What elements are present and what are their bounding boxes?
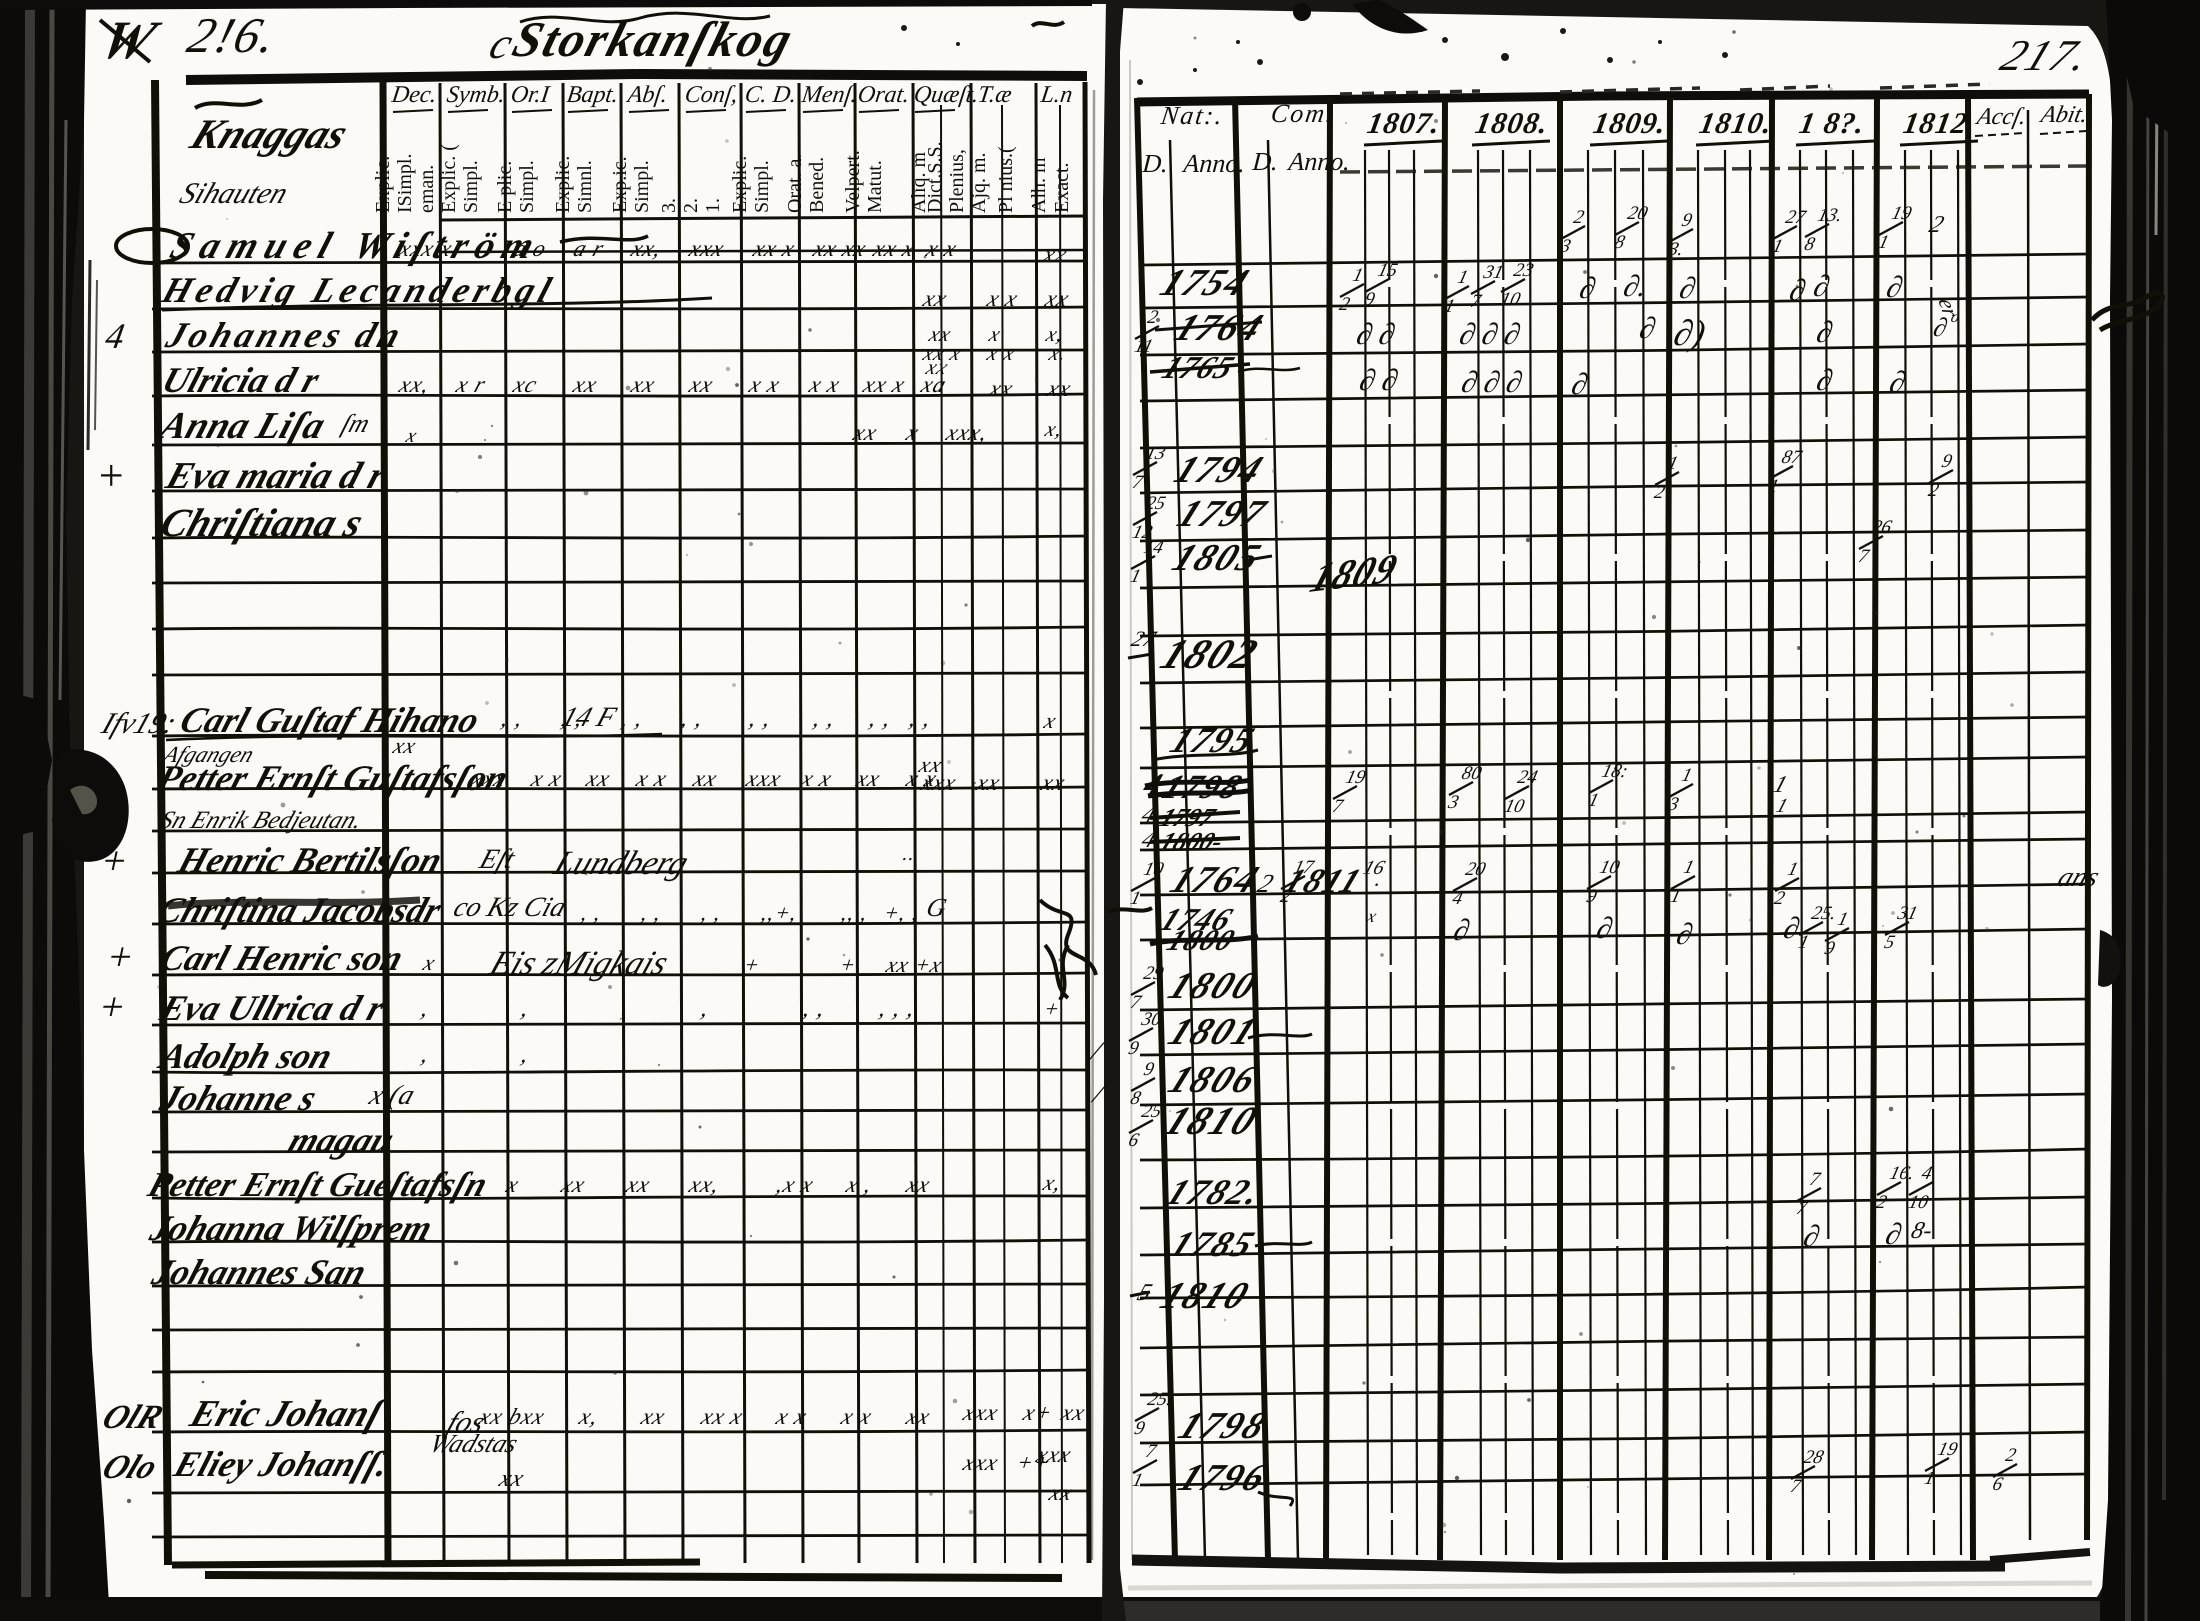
svg-text:xx x: xx x <box>697 1405 747 1430</box>
svg-text:Explic.: Explic. <box>372 156 394 213</box>
svg-text:Explic.: Explic. <box>729 156 751 213</box>
svg-text:Sihauten: Sihauten <box>176 176 293 210</box>
svg-text:Eis zMigkais: Eis zMigkais <box>484 944 673 982</box>
svg-text:1 8?.: 1 8?. <box>1797 106 1868 140</box>
svg-text:Wadstas: Wadstas <box>426 1429 522 1458</box>
svg-text:Ifv19:: Ifv19: <box>97 706 182 740</box>
svg-text:2!6.: 2!6. <box>182 9 285 64</box>
svg-text:Pl nius.(: Pl nius.( <box>995 146 1017 213</box>
svg-text:Matut.: Matut. <box>864 160 886 213</box>
svg-text:1808.: 1808. <box>1473 106 1551 140</box>
svg-text:xx x: xx x <box>749 237 799 262</box>
svg-text:Storkanſkog: Storkanſkog <box>507 13 800 68</box>
svg-text:co Kz Cia: co Kz Cia <box>450 892 571 923</box>
svg-text:Dec.: Dec. <box>389 82 438 108</box>
svg-text:Menſ.: Menſ. <box>799 82 859 108</box>
svg-text:Chriſtiana s: Chriſtiana s <box>155 500 368 545</box>
svg-text:Accſ.: Accſ. <box>1973 103 2029 130</box>
svg-text:Orat. a.: Orat. a. <box>784 154 806 213</box>
svg-text:Abit.: Abit. <box>2037 101 2091 128</box>
svg-text:Eva maria d r: Eva maria d r <box>160 455 392 497</box>
svg-text:Conſ,: Conſ, <box>683 82 739 108</box>
svg-text:Simnl.: Simnl. <box>574 160 596 213</box>
svg-text:Knaggas: Knaggas <box>183 111 354 157</box>
svg-text:3.: 3. <box>658 198 680 213</box>
svg-text:Samuel Wiſtröm: Samuel Wiſtröm <box>165 225 547 267</box>
svg-text:Petter Ernſt Guſtafsſon: Petter Ernſt Guſtafsſon <box>151 758 513 798</box>
svg-text:1810.: 1810. <box>1697 106 1775 140</box>
svg-text:xx xx: xx xx <box>809 237 870 262</box>
svg-text:Com.: Com. <box>1269 99 1337 128</box>
svg-text:D.: D. <box>1141 149 1169 178</box>
svg-text:Petter Ernſt Gueſtafsſn: Petter Ernſt Gueſtafsſn <box>142 1165 492 1204</box>
svg-text:Quæſt.: Quæſt. <box>912 82 980 108</box>
svg-text:1.: 1. <box>702 198 724 213</box>
svg-text:D.: D. <box>1251 147 1279 176</box>
svg-text:Symb.: Symb. <box>445 82 507 108</box>
svg-text:1782.: 1782. <box>1160 1173 1269 1213</box>
svg-text:Bapt.: Bapt. <box>565 82 620 108</box>
svg-text:Exp.ic.: Exp.ic. <box>609 156 631 213</box>
svg-text:Adolph son: Adolph son <box>154 1036 338 1076</box>
svg-text:Eliey Johanſſ.: Eliey Johanſſ. <box>168 1444 394 1484</box>
svg-text:xxx x: xxx x <box>395 237 456 262</box>
svg-text:Johannes dn: Johannes dn <box>160 315 409 355</box>
svg-text:1811: 1811 <box>1279 861 1369 899</box>
svg-text:L.n: L.n <box>1038 82 1074 108</box>
svg-text:xxx,: xxx, <box>942 421 992 446</box>
svg-text:Chriſtina Jacobsdr: Chriſtina Jacobsdr <box>152 890 447 930</box>
svg-text:∂ ∂ ∂: ∂ ∂ ∂ <box>1458 365 1526 398</box>
svg-text:Johanne s: Johanne s <box>154 1078 321 1118</box>
svg-text:Simpl.: Simpl. <box>516 160 538 213</box>
svg-text:Dict.S.S.: Dict.S.S. <box>924 141 946 213</box>
svg-text:xx x: xx x <box>859 373 909 398</box>
svg-text:∂ ∂ ∂: ∂ ∂ ∂ <box>1456 317 1524 350</box>
svg-text:Bened.: Bened. <box>806 157 828 213</box>
svg-text:Henric Bertilsſon: Henric Bertilsſon <box>172 840 447 880</box>
svg-text:Explic. (: Explic. ( <box>438 144 460 213</box>
svg-text:Nat:.: Nat:. <box>1158 101 1226 130</box>
svg-text:Johannes San: Johannes San <box>146 1252 371 1292</box>
svg-text:Explic.: Explic. <box>552 156 574 213</box>
svg-text:1812: 1812 <box>1901 106 1971 140</box>
svg-text:Carl Guſtaf Hihano: Carl Guſtaf Hihano <box>175 700 484 740</box>
svg-text:Ulricia d r: Ulricia d r <box>157 360 325 400</box>
svg-text:Anna Liſa: Anna Liſa <box>152 405 330 447</box>
svg-text:eman.: eman. <box>416 165 438 213</box>
svg-text:Alh. m: Alh. m <box>1028 157 1050 213</box>
svg-text:ISimpl.: ISimpl. <box>394 154 416 213</box>
svg-text:C. D.: C. D. <box>743 82 798 108</box>
svg-text:Eva Ullrica d r: Eva Ullrica d r <box>154 988 389 1028</box>
svg-text:Ajq. m.: Ajq. m. <box>968 152 990 213</box>
svg-text:Plenius,: Plenius, <box>946 149 968 213</box>
svg-text:Anno.: Anno. <box>1181 149 1246 178</box>
svg-text:xx bxx: xx bxx <box>475 1405 548 1430</box>
svg-text:Sn Enrik Bedjeutan.: Sn Enrik Bedjeutan. <box>156 806 367 834</box>
svg-text:+: + <box>96 451 126 500</box>
svg-text:1809.: 1809. <box>1591 106 1669 140</box>
svg-text:Velpert.: Velpert. <box>842 150 864 213</box>
svg-text:xx +x: xx +x <box>882 953 946 977</box>
svg-text:Simpl.: Simpl. <box>631 160 653 213</box>
svg-text:Johanna Wilſprem: Johanna Wilſprem <box>144 1208 437 1248</box>
svg-text:Lundberg: Lundberg <box>548 844 694 882</box>
svg-text:1807.: 1807. <box>1365 106 1443 140</box>
svg-text:Orat.: Orat. <box>856 82 911 108</box>
svg-text:2.: 2. <box>680 198 702 213</box>
svg-text:magau: magau <box>283 1121 399 1161</box>
svg-text:Abſ.: Abſ. <box>624 82 669 108</box>
svg-text:Or.I: Or.I <box>509 82 552 108</box>
svg-text:T.æ: T.æ <box>976 82 1013 108</box>
svg-text:E plic.: E plic. <box>494 161 516 213</box>
svg-text:Carl Henric son: Carl Henric son <box>155 938 408 978</box>
svg-text:18:: 18: <box>1600 761 1630 782</box>
svg-text:Simpl.: Simpl. <box>460 160 482 213</box>
svg-text:Simpl.: Simpl. <box>751 160 773 213</box>
svg-text:xx x: xx x <box>869 237 919 262</box>
svg-text:Exact.: Exact. <box>1051 162 1073 213</box>
svg-text:Eric Johanſ: Eric Johanſ <box>184 1393 391 1435</box>
